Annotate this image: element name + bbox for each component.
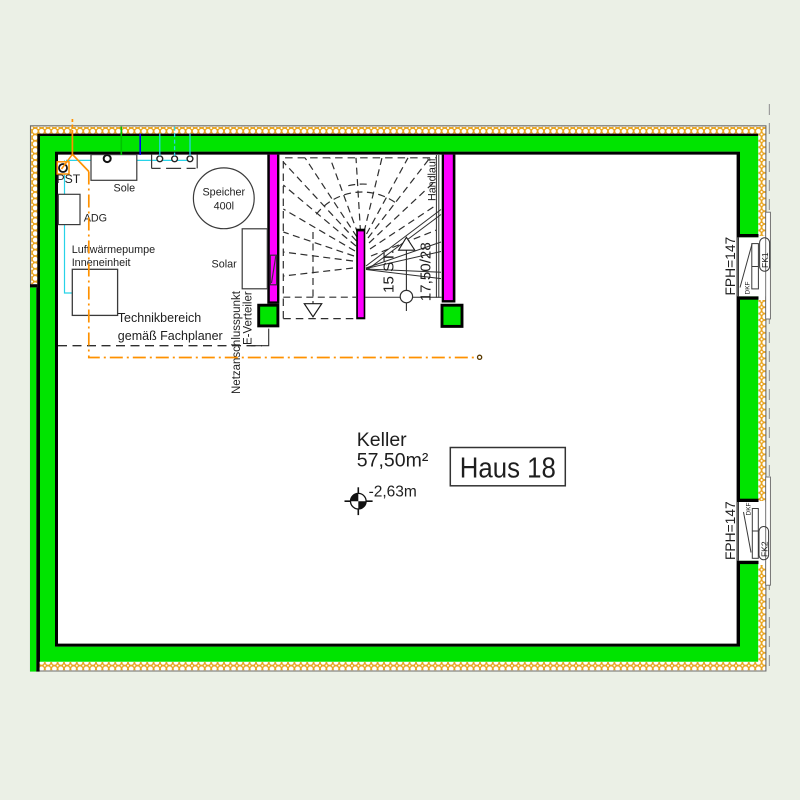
svg-text:400l: 400l — [214, 201, 234, 213]
svg-text:-2,63m: -2,63m — [369, 484, 417, 501]
svg-text:Keller: Keller — [357, 429, 407, 451]
svg-text:15 ST.: 15 ST. — [381, 250, 398, 293]
svg-text:FPH=147: FPH=147 — [723, 501, 738, 560]
svg-text:Technikbereich: Technikbereich — [118, 311, 201, 325]
svg-text:DKF: DKF — [745, 281, 752, 294]
svg-text:Solar: Solar — [212, 259, 238, 271]
svg-text:ADG: ADG — [84, 212, 107, 224]
svg-text:FPH=147: FPH=147 — [723, 237, 738, 296]
svg-text:E-Verteiler: E-Verteiler — [243, 291, 255, 345]
svg-text:Speicher: Speicher — [202, 187, 245, 199]
svg-text:FK1: FK1 — [760, 252, 770, 268]
svg-text:Netzanschlusspunkt: Netzanschlusspunkt — [231, 290, 243, 394]
svg-text:Inneneinheit: Inneneinheit — [72, 257, 131, 269]
svg-text:gemäß Fachplaner: gemäß Fachplaner — [118, 329, 223, 343]
svg-text:PST: PST — [57, 172, 81, 186]
svg-text:57,50m²: 57,50m² — [357, 450, 429, 472]
svg-text:DKF: DKF — [746, 502, 753, 515]
svg-text:FK2: FK2 — [759, 541, 769, 557]
svg-text:Sole: Sole — [114, 182, 136, 194]
svg-text:Luftwärmepumpe: Luftwärmepumpe — [72, 244, 155, 256]
svg-text:Handlauf: Handlauf — [426, 158, 438, 201]
svg-text:17,50/28: 17,50/28 — [418, 242, 435, 301]
svg-text:Haus 18: Haus 18 — [460, 452, 556, 484]
